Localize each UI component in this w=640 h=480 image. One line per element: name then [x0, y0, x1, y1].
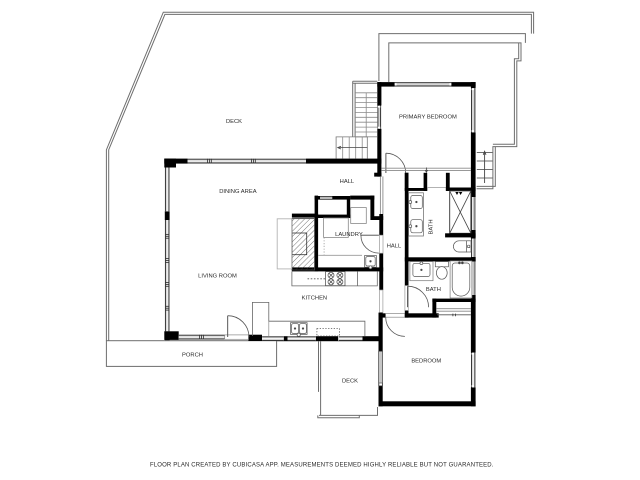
svg-text:BATH: BATH [429, 219, 435, 234]
svg-text:PORCH: PORCH [182, 353, 203, 359]
svg-text:LAUNDRY: LAUNDRY [335, 232, 363, 238]
svg-text:LIVING ROOM: LIVING ROOM [198, 274, 237, 280]
svg-text:BATH: BATH [426, 287, 441, 293]
svg-text:BEDROOM: BEDROOM [411, 358, 441, 364]
svg-text:DINING AREA: DINING AREA [219, 189, 256, 195]
svg-text:HALL: HALL [340, 179, 355, 185]
svg-text:FLOOR PLAN CREATED BY CUBICASA: FLOOR PLAN CREATED BY CUBICASA APP. MEAS… [150, 463, 494, 469]
svg-text:DECK: DECK [342, 378, 358, 384]
svg-text:PRIMARY BEDROOM: PRIMARY BEDROOM [399, 115, 457, 121]
svg-text:KITCHEN: KITCHEN [302, 296, 327, 302]
svg-text:HALL: HALL [387, 244, 402, 250]
svg-text:DECK: DECK [226, 119, 242, 125]
